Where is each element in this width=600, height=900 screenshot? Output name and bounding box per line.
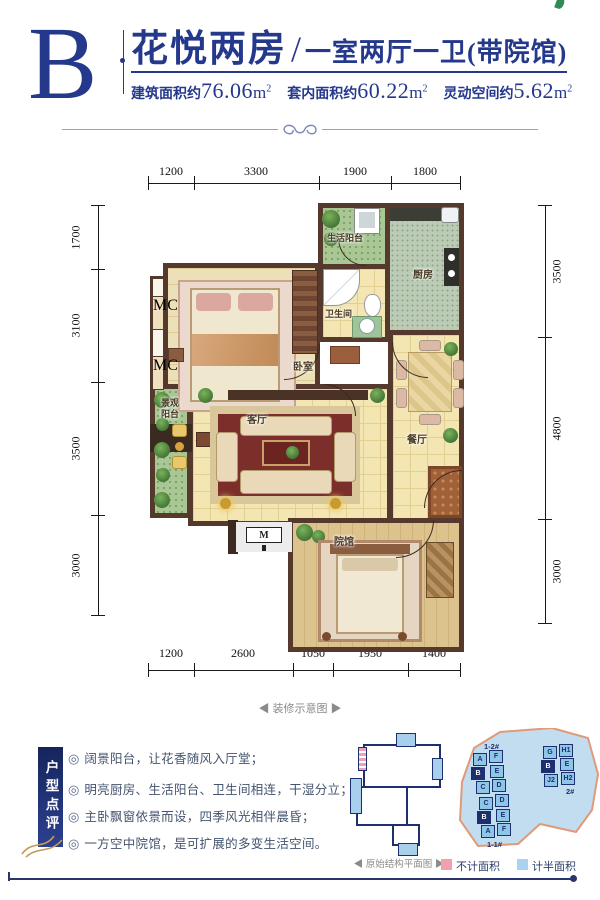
bottom-rule	[8, 878, 574, 880]
floor-lamp	[330, 498, 341, 509]
label-view-balcony-2: 阳台	[161, 407, 179, 420]
balcony-chair	[172, 456, 187, 469]
unit-cell: F	[497, 823, 511, 836]
entry-marker-stem	[262, 545, 266, 551]
plant	[286, 446, 299, 459]
legend-swatch-pink	[441, 859, 452, 870]
stat-value: 76.06	[201, 78, 253, 103]
washbasin	[359, 318, 375, 334]
stat-sup: 2	[567, 84, 572, 95]
label-courtyard: 院馆	[334, 533, 354, 548]
unit-cell: D	[492, 779, 506, 792]
ornament-line-right	[322, 129, 538, 130]
flyer-page: B 花悦两房/一室两厅一卫(带院馆) 建筑面积约76.06m2 套内面积约60.…	[0, 0, 600, 900]
dim-line-left	[98, 205, 99, 615]
dim-bottom-2: 2600	[229, 646, 257, 661]
dim-tick	[148, 176, 149, 190]
plant	[444, 342, 458, 356]
dim-right-2: 4800	[550, 409, 565, 449]
title-separator: /	[291, 29, 301, 69]
label-bedroom: 卧室	[293, 358, 313, 373]
unit-cell: E	[490, 765, 504, 778]
burner	[448, 254, 455, 261]
leaf-decoration	[554, 0, 566, 10]
balcony-chair	[172, 424, 187, 437]
ornament-line-left	[62, 129, 278, 130]
bullet-icon: ◎	[68, 751, 79, 766]
plant	[322, 210, 340, 228]
unit-cell: C	[479, 797, 493, 810]
dim-top-3: 1900	[341, 164, 369, 179]
unit-cell: E	[560, 758, 574, 771]
sofa-right	[334, 432, 356, 482]
dim-tick	[91, 269, 105, 270]
plant	[296, 524, 313, 541]
dim-top-4: 1800	[411, 164, 439, 179]
dim-tick	[538, 519, 552, 520]
unit-cell-highlight: B	[477, 811, 491, 824]
bullet-text: 一方空中院馆，是可扩展的多变生活空间。	[84, 837, 327, 851]
sofa-left	[216, 432, 238, 482]
dim-tick	[538, 205, 552, 206]
dim-top-2: 3300	[242, 164, 270, 179]
wardrobe	[292, 270, 318, 354]
legend-label-blue: 计半面积	[532, 858, 576, 874]
stat-unit: m	[253, 83, 266, 102]
structure-window	[350, 778, 362, 814]
unit-cell-highlight: B	[541, 760, 555, 773]
stat-sup: 2	[422, 84, 427, 95]
dining-chair	[453, 388, 464, 408]
ornament-flourish-icon	[281, 121, 319, 138]
review-point-1: ◎阔景阳台，让花香随风入厅堂；	[68, 748, 264, 768]
structure-balcony	[398, 843, 418, 856]
stat-unit: m	[409, 83, 422, 102]
pillow	[196, 293, 231, 311]
structure-window	[432, 758, 443, 780]
unit-cell: H1	[559, 744, 573, 757]
dim-tick	[319, 176, 320, 190]
bullet-icon: ◎	[68, 782, 79, 797]
label-bathroom: 卫生间	[325, 307, 352, 320]
unit-cell: D	[495, 794, 509, 807]
unit-cell: F	[489, 750, 503, 763]
structure-caption: ◀ 原始结构平面图 ▶	[344, 856, 454, 870]
dim-tick	[391, 176, 392, 190]
dim-bottom-1: 1200	[157, 646, 185, 661]
bay-window-box: MC	[152, 356, 164, 390]
dim-right-3: 3000	[550, 552, 565, 592]
stat-inner-area: 套内面积约60.22m2	[287, 78, 427, 104]
washing-machine-drum	[359, 212, 375, 228]
toilet	[364, 294, 381, 317]
review-point-2: ◎明亮厨房、生活阳台、卫生间相连，干湿分立；	[68, 779, 353, 799]
lamp	[398, 632, 407, 641]
pillow	[238, 293, 273, 311]
page-title: 花悦两房	[131, 29, 287, 70]
title-underline	[131, 71, 567, 73]
unit-cell: G	[543, 746, 557, 759]
burner	[448, 270, 455, 277]
dim-top-1: 1200	[157, 164, 185, 179]
dim-tick	[460, 176, 461, 190]
area-stats: 建筑面积约76.06m2 套内面积约60.22m2 灵动空间约5.62m2	[131, 78, 572, 104]
unit-cell-highlight: B	[471, 767, 485, 780]
stat-unit: m	[554, 83, 567, 102]
stat-label: 套内面积约	[287, 87, 357, 102]
plant	[154, 442, 170, 458]
pillow	[342, 558, 398, 571]
dim-tick	[91, 615, 105, 616]
dim-tick	[148, 663, 149, 677]
kitchen-sink	[441, 207, 459, 223]
legend-label-pink: 不计面积	[456, 858, 500, 874]
plan-caption: ◀ 装修示意图 ▶	[240, 700, 360, 716]
bottom-rule-dot	[570, 875, 577, 882]
bullet-icon: ◎	[68, 836, 79, 851]
stat-value: 60.22	[357, 78, 409, 103]
dim-tick	[408, 663, 409, 677]
structure-outline	[356, 786, 408, 826]
dim-tick	[194, 176, 195, 190]
review-point-3: ◎主卧飘窗依景而设，四季风光相伴晨昏；	[68, 806, 315, 826]
bullet-text: 主卧飘窗依景而设，四季风光相伴晨昏；	[84, 810, 314, 824]
kitchen-counter	[390, 208, 442, 221]
unit-cell: J2	[544, 774, 558, 787]
dim-left-1: 1700	[69, 218, 84, 258]
bath-mat	[330, 346, 360, 364]
dim-tick	[460, 663, 461, 677]
review-banner-text: 户型点评	[41, 760, 61, 834]
plant	[370, 388, 385, 403]
stat-label: 灵动空间约	[443, 87, 513, 102]
plant	[443, 428, 458, 443]
dim-left-2: 3100	[69, 306, 84, 346]
blanket	[192, 334, 278, 366]
unit-cell: C	[476, 781, 490, 794]
plant	[154, 492, 170, 508]
sofa-front	[240, 470, 332, 494]
dim-tick	[293, 663, 294, 677]
dining-chair	[419, 414, 441, 425]
plant	[156, 468, 170, 482]
stat-value: 5.62	[513, 78, 554, 103]
stat-built-area: 建筑面积约76.06m2	[131, 78, 271, 104]
unit-cell: E	[496, 809, 510, 822]
balcony-table	[175, 442, 184, 451]
structure-balcony	[396, 733, 416, 747]
header-divider-dot	[120, 58, 125, 63]
dim-tick	[538, 337, 552, 338]
lamp	[322, 632, 331, 641]
bullet-text: 明亮厨房、生活阳台、卫生间相连，干湿分立；	[84, 783, 353, 797]
building-name-2: 2#	[566, 787, 574, 796]
plant	[198, 388, 213, 403]
dim-tick	[91, 515, 105, 516]
page-subtitle: 一室两厅一卫(带院馆)	[305, 38, 567, 67]
legend-swatch-blue	[517, 859, 528, 870]
dining-chair	[396, 388, 407, 408]
building-name-1-1: 1-1#	[487, 840, 502, 849]
bullet-text: 阔景阳台，让花香随风入厅堂；	[84, 752, 263, 766]
bullet-icon: ◎	[68, 809, 79, 824]
dim-tick	[333, 663, 334, 677]
dim-left-3: 3500	[69, 429, 84, 469]
unit-cell: H2	[561, 772, 575, 785]
dim-right-1: 3500	[550, 252, 565, 292]
stat-sup: 2	[266, 84, 271, 95]
entry-marker: M	[246, 527, 282, 543]
review-point-4: ◎一方空中院馆，是可扩展的多变生活空间。	[68, 833, 328, 853]
label-living: 客厅	[247, 411, 267, 426]
dim-tick	[194, 663, 195, 677]
courtyard-wardrobe	[426, 542, 454, 598]
floor-lamp	[220, 498, 231, 509]
dim-tick	[538, 623, 552, 624]
dim-left-4: 3000	[69, 546, 84, 586]
structure-pink-strip	[358, 747, 367, 771]
unit-cell: A	[481, 825, 495, 838]
stat-label: 建筑面积约	[131, 87, 201, 102]
plan-letter: B	[28, 12, 97, 116]
dim-line-right	[545, 205, 546, 623]
dim-tick	[91, 205, 105, 206]
stat-flex-area: 灵动空间约5.62m2	[443, 78, 572, 104]
dim-tick	[91, 382, 105, 383]
title-row: 花悦两房/一室两厅一卫(带院馆)	[131, 18, 571, 72]
unit-cell: A	[473, 753, 487, 766]
dining-chair	[453, 360, 464, 380]
label-service-balcony: 生活阳台	[327, 231, 363, 244]
structure-outline	[363, 744, 441, 788]
label-kitchen: 厨房	[413, 266, 433, 281]
label-dining: 餐厅	[407, 431, 427, 446]
bay-window-box: MC	[152, 296, 164, 330]
